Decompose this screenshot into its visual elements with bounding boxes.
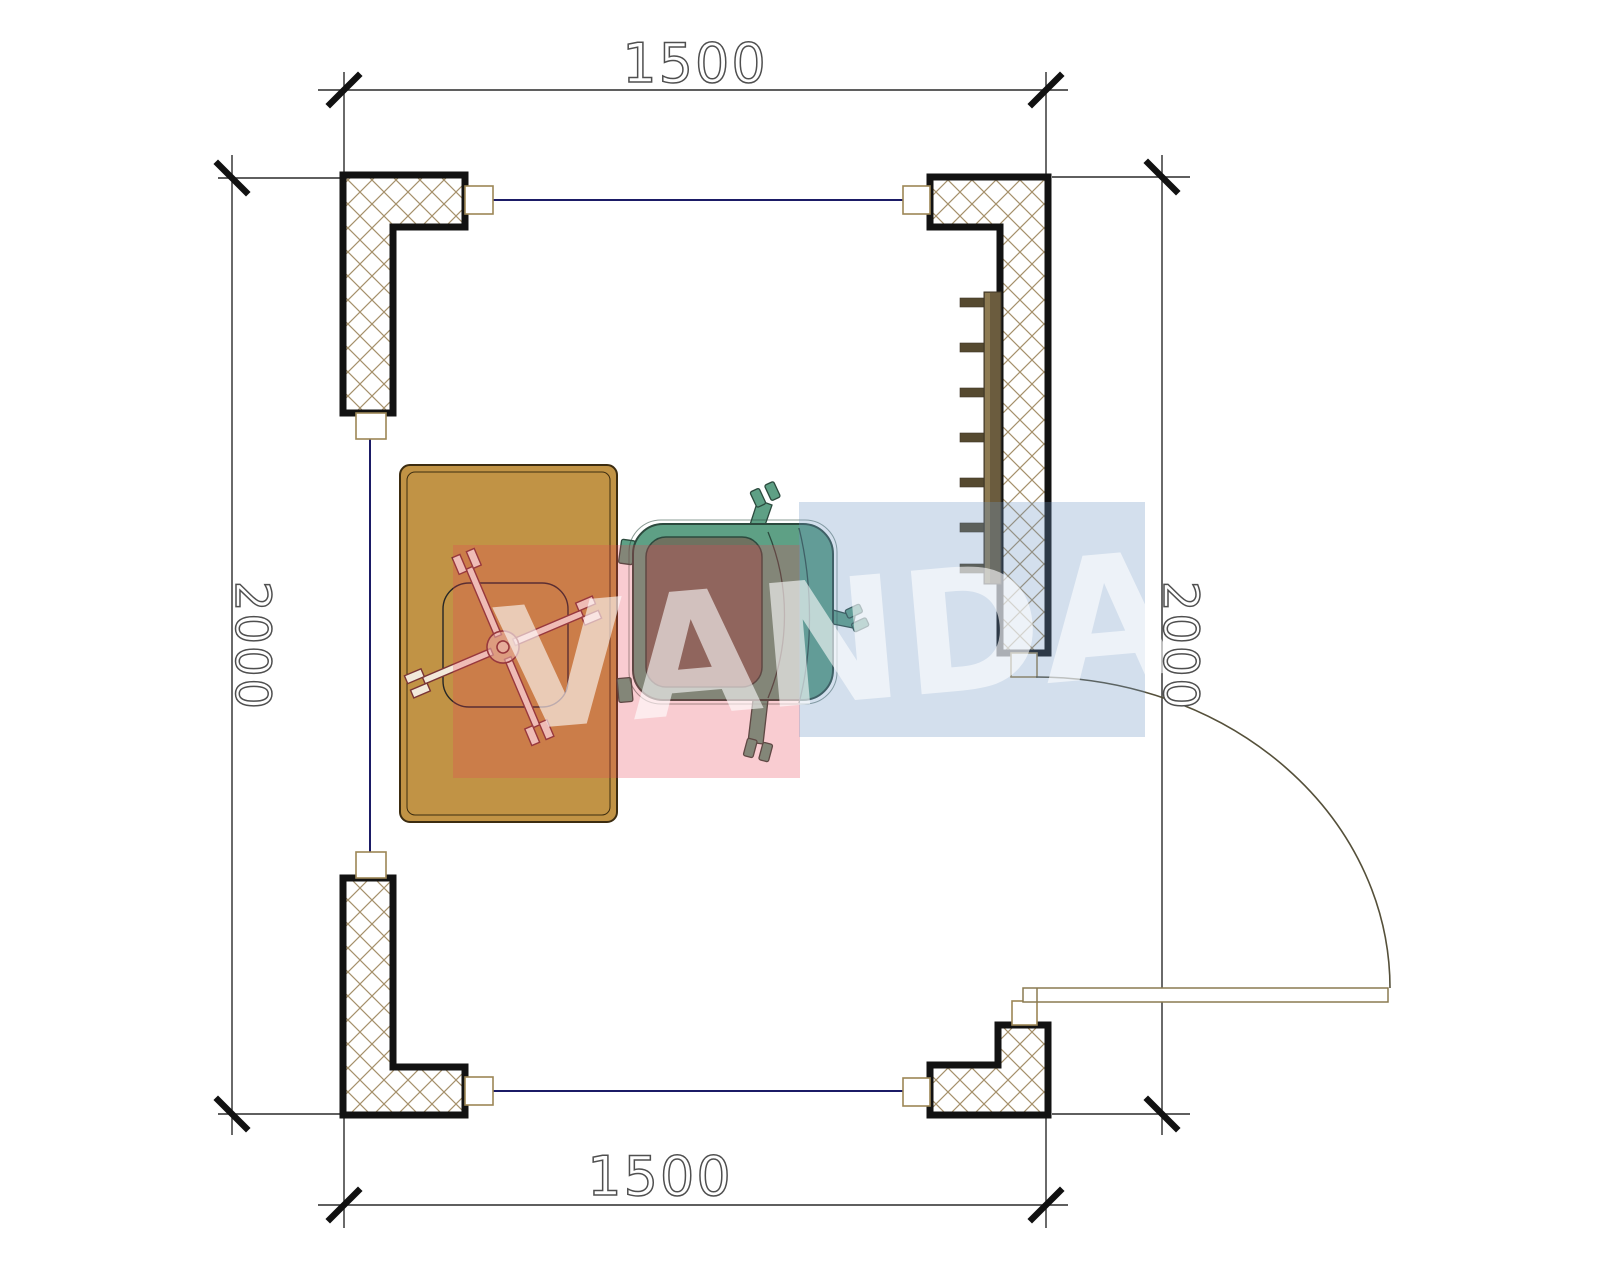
wall-corner-top-left [343, 175, 465, 413]
door-leaf [1023, 988, 1388, 1002]
wall-corner-bottom-left [343, 878, 465, 1115]
dimension-left-label: 2000 [228, 546, 280, 746]
watermark-red-block [453, 545, 800, 778]
dimension-right-label: 2000 [1156, 546, 1208, 746]
dimension-bottom-label: 1500 [560, 1145, 760, 1203]
wall-corner-bottom-right [930, 1025, 1048, 1115]
floor-plan-canvas: V A N D A 1500 1500 2000 2000 [0, 0, 1600, 1280]
watermark-blue-block [799, 502, 1145, 737]
dimension-top-label: 1500 [595, 32, 795, 90]
